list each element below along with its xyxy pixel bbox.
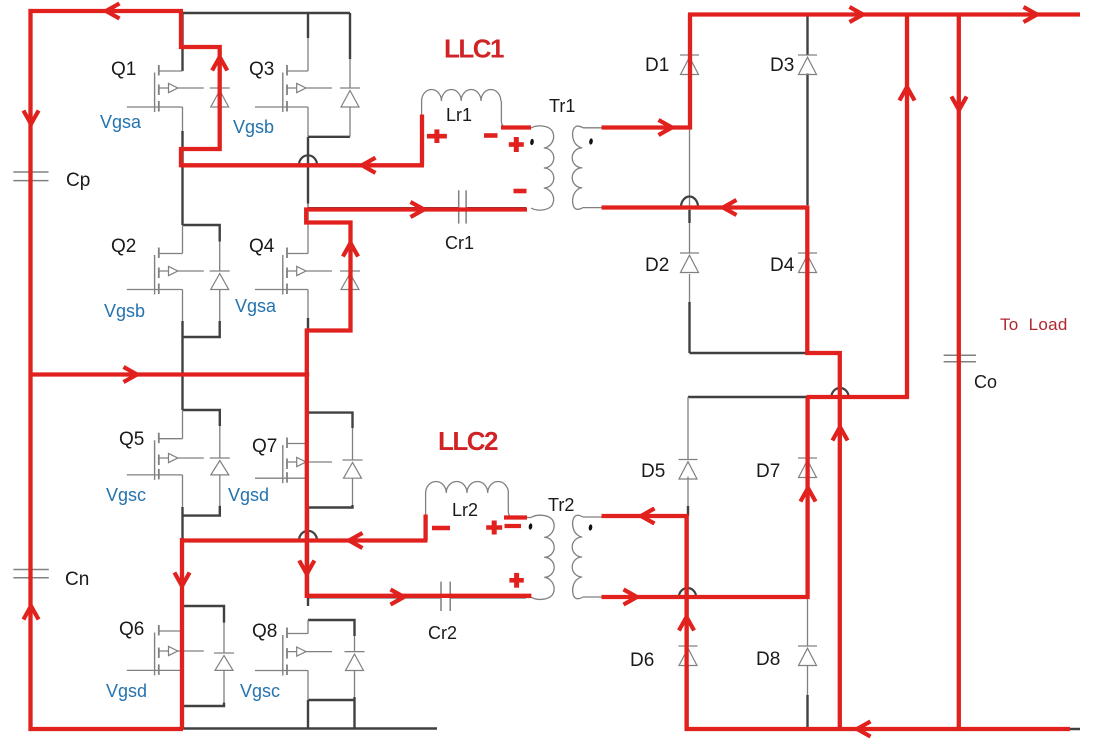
svg-text:Co: Co [974, 372, 997, 392]
svg-text:LLC1: LLC1 [444, 34, 504, 64]
svg-text:Q5: Q5 [119, 429, 144, 450]
svg-text:LLC2: LLC2 [438, 426, 498, 456]
svg-text:Tr2: Tr2 [548, 495, 574, 515]
svg-text:D6: D6 [630, 650, 654, 671]
svg-text:D3: D3 [770, 55, 794, 76]
svg-text:Q3: Q3 [249, 59, 274, 80]
svg-text:Vgsd: Vgsd [106, 681, 147, 701]
svg-text:Q7: Q7 [252, 436, 277, 457]
svg-text:Vgsc: Vgsc [106, 485, 146, 505]
svg-text:Q8: Q8 [252, 621, 277, 642]
svg-text:D1: D1 [645, 55, 669, 76]
svg-text:Vgsc: Vgsc [240, 681, 280, 701]
svg-text:To Load: To Load [1000, 315, 1068, 334]
svg-text:Vgsd: Vgsd [228, 485, 269, 505]
svg-text:D2: D2 [645, 255, 669, 276]
svg-text:Vgsa: Vgsa [100, 112, 142, 132]
svg-text:Vgsb: Vgsb [104, 301, 145, 321]
svg-text:Cr2: Cr2 [428, 623, 457, 643]
svg-text:Lr2: Lr2 [452, 500, 478, 520]
svg-text:Vgsb: Vgsb [233, 117, 274, 137]
svg-text:D7: D7 [756, 461, 780, 482]
svg-text:Vgsa: Vgsa [235, 296, 277, 316]
svg-text:Cp: Cp [66, 170, 90, 191]
svg-text:Q2: Q2 [111, 236, 136, 257]
svg-text:D8: D8 [756, 649, 780, 670]
svg-text:Q1: Q1 [111, 59, 136, 80]
svg-text:Tr1: Tr1 [549, 96, 575, 116]
svg-text:Cr1: Cr1 [445, 233, 474, 253]
svg-text:Q4: Q4 [249, 236, 275, 257]
svg-text:Q6: Q6 [119, 619, 144, 640]
svg-text:Lr1: Lr1 [446, 105, 472, 125]
svg-text:D4: D4 [770, 255, 795, 276]
svg-text:D5: D5 [641, 461, 665, 482]
svg-text:Cn: Cn [65, 569, 89, 590]
